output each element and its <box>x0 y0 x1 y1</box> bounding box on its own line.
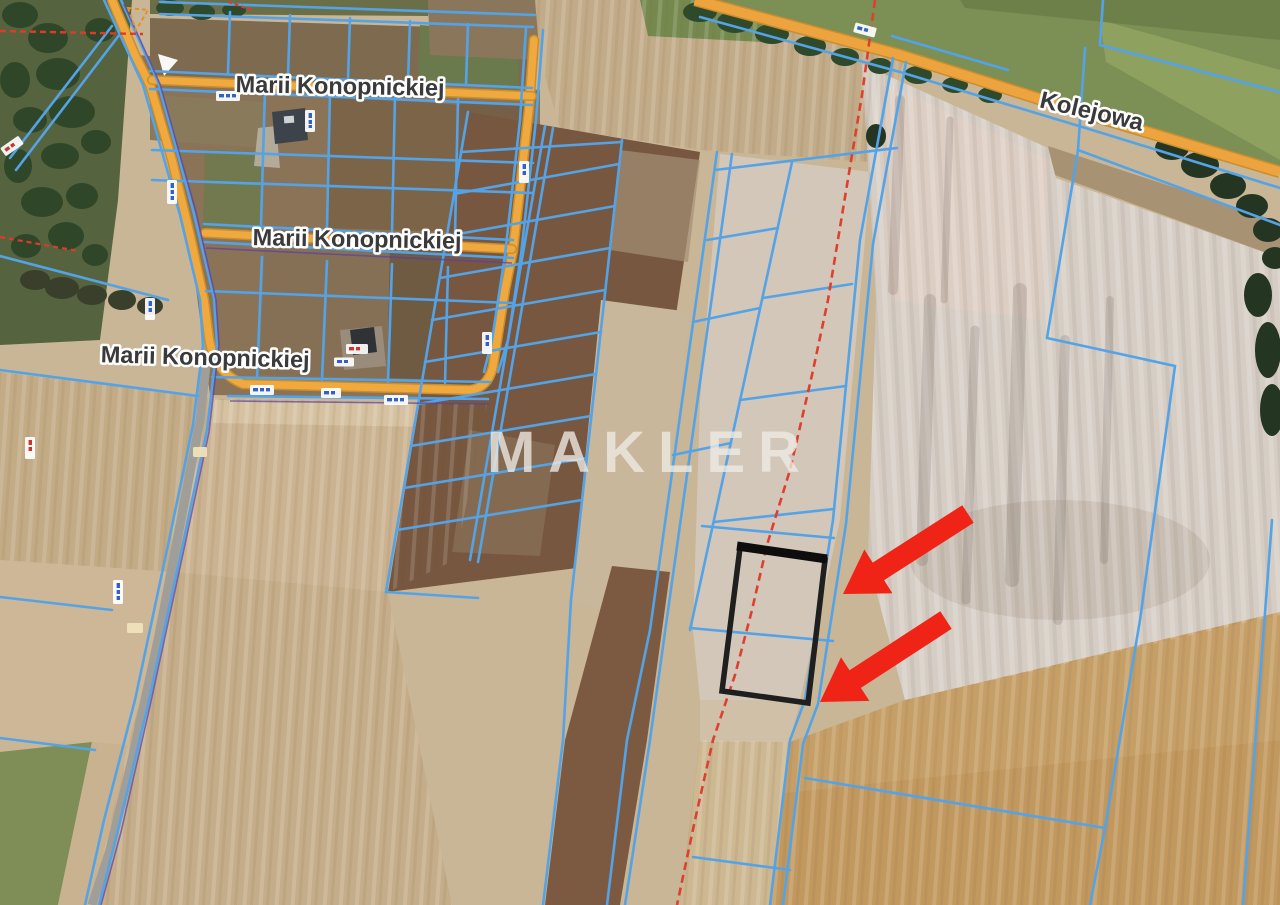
single-tree <box>866 124 886 148</box>
map-viewport[interactable]: Marii Konopnickiej Marii Konopnickiej Ma… <box>0 0 1280 905</box>
makler-watermark: MAKLER <box>487 420 813 485</box>
street-label-marii-konopnickiej-1: Marii Konopnickiej <box>235 71 444 101</box>
map-canvas[interactable]: Marii Konopnickiej Marii Konopnickiej Ma… <box>0 0 1280 905</box>
building <box>272 108 308 144</box>
street-label-marii-konopnickiej-2: Marii Konopnickiej <box>252 224 461 254</box>
street-label-marii-konopnickiej-3: Marii Konopnickiej <box>100 341 310 372</box>
